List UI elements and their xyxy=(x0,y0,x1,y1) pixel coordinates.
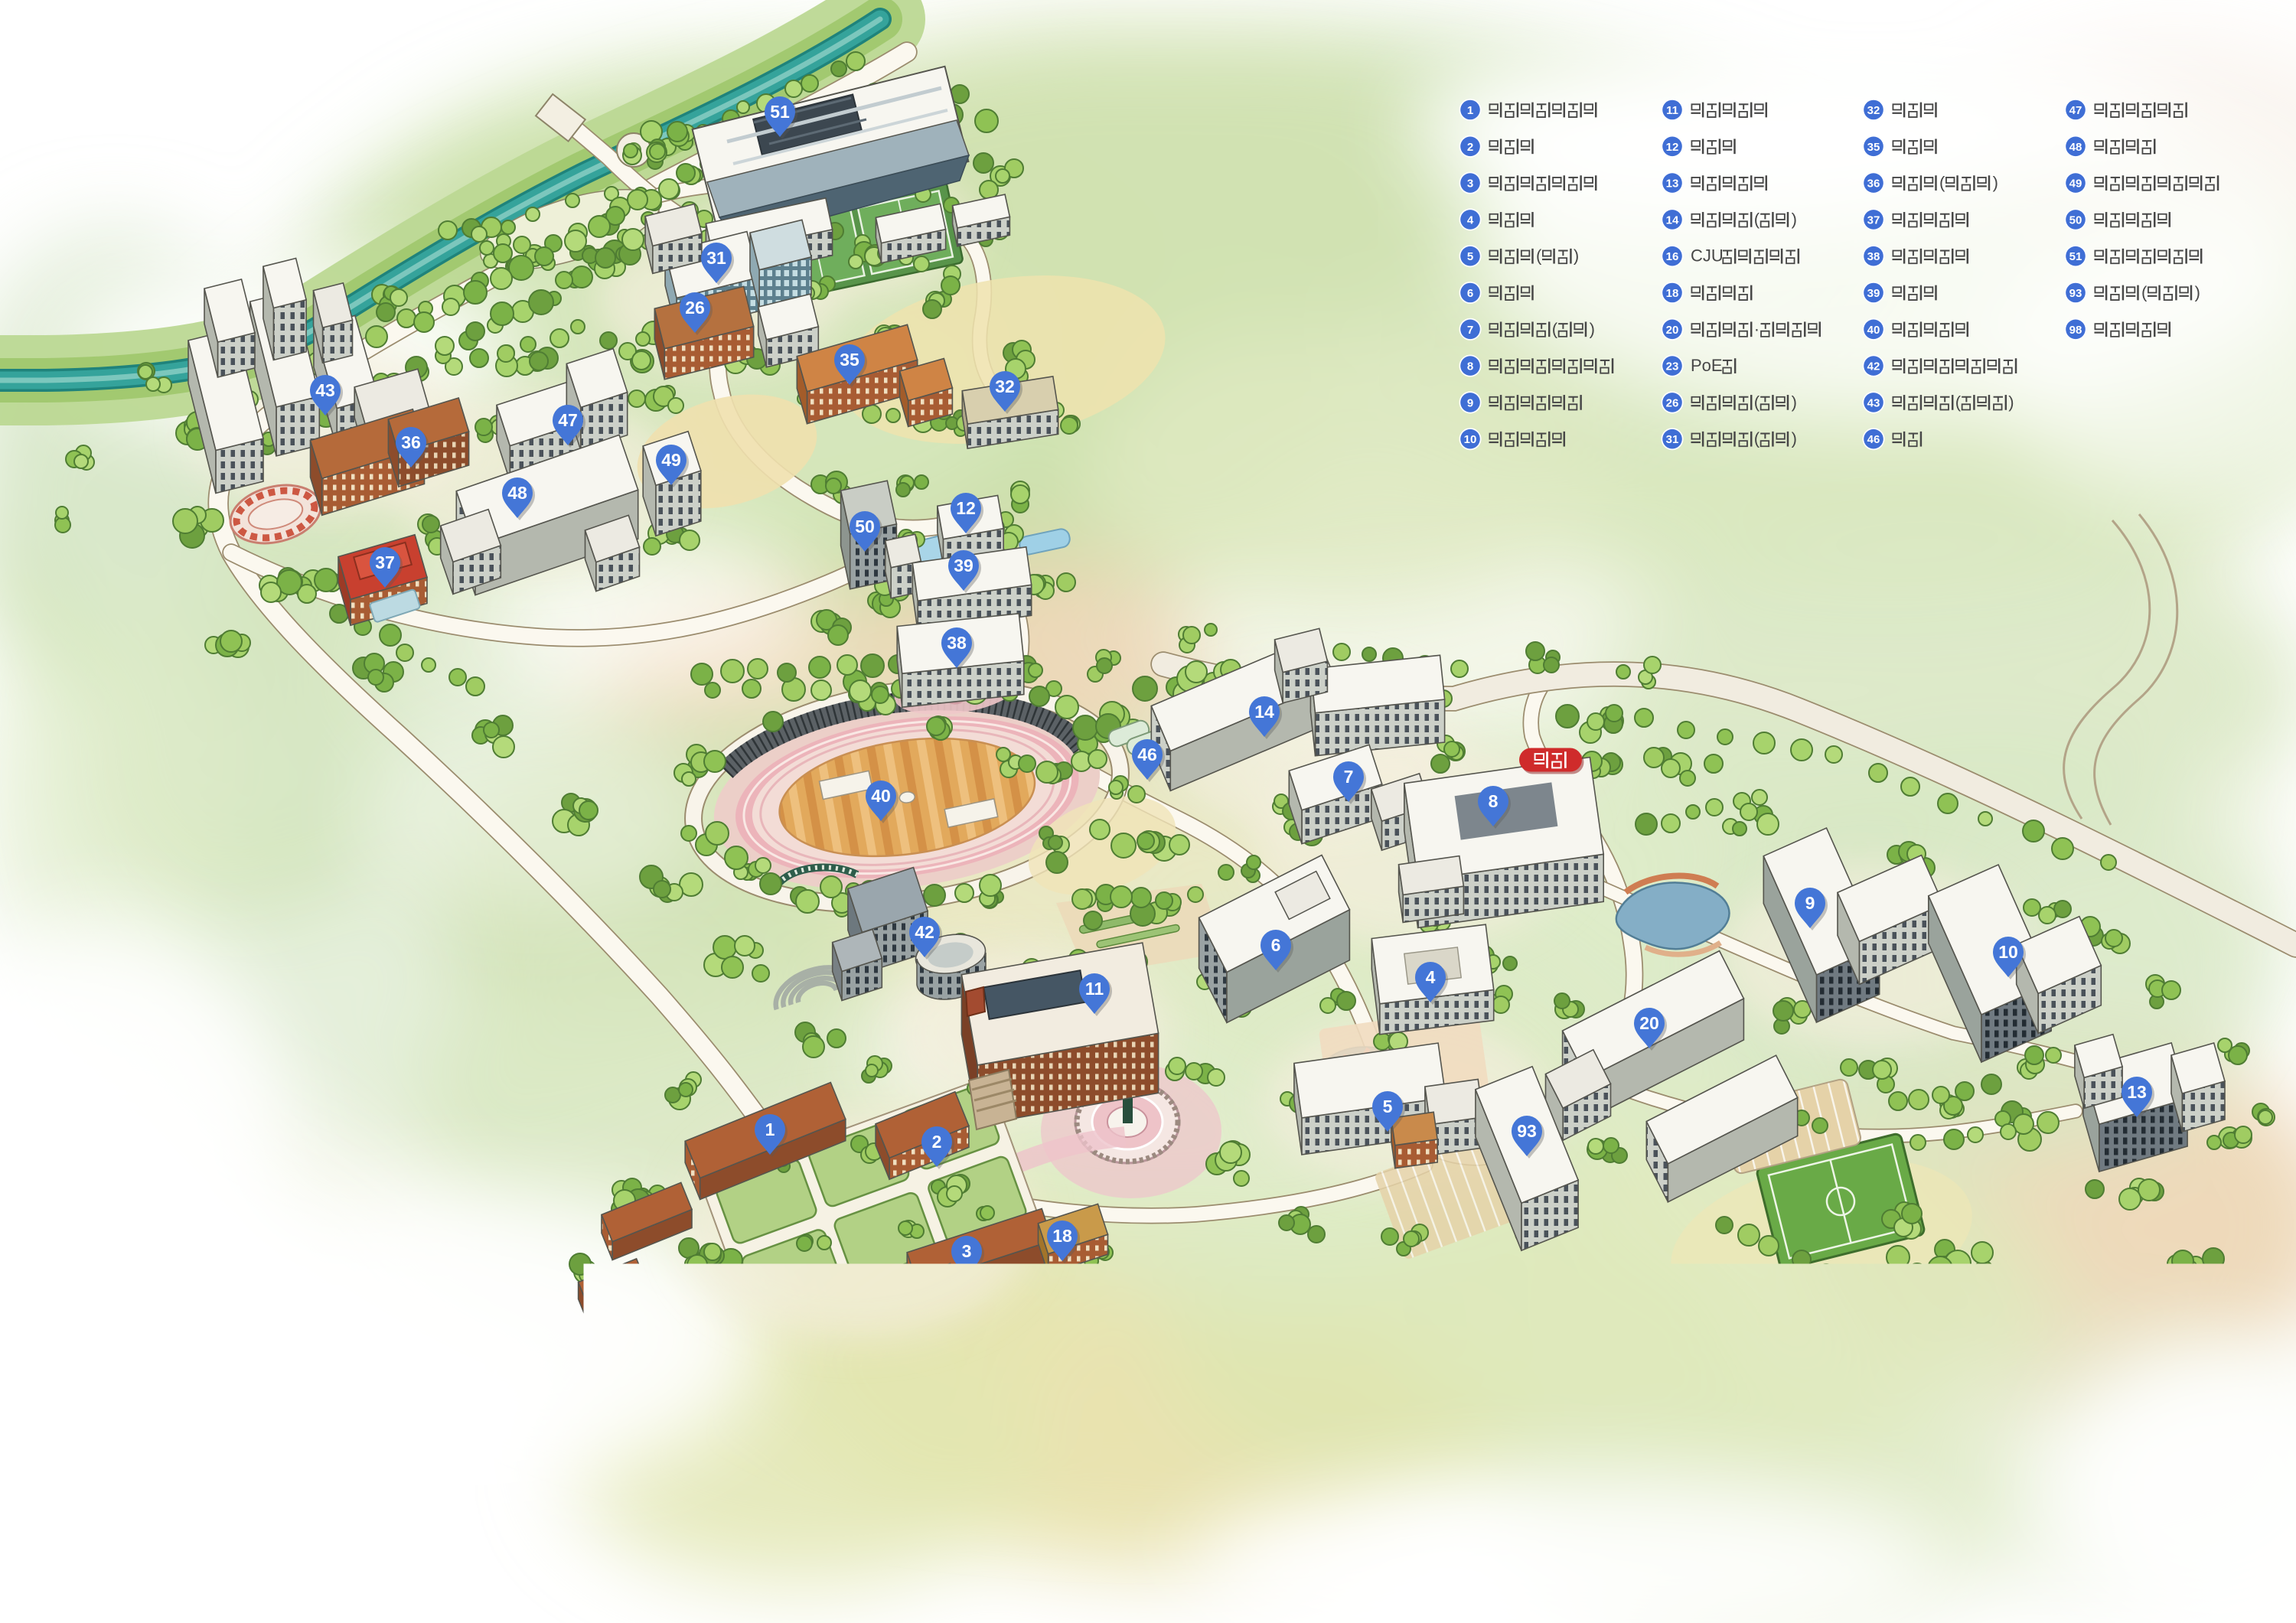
svg-text:42: 42 xyxy=(915,922,934,942)
svg-text:38: 38 xyxy=(947,633,967,653)
svg-text:7: 7 xyxy=(1344,767,1354,787)
svg-text:48: 48 xyxy=(2069,141,2082,154)
svg-text:47: 47 xyxy=(558,410,578,430)
svg-text:50: 50 xyxy=(855,517,875,536)
svg-text:2: 2 xyxy=(1467,141,1473,154)
svg-text:35: 35 xyxy=(840,350,859,370)
svg-text:18: 18 xyxy=(1666,287,1679,300)
svg-text:): ) xyxy=(1574,246,1579,266)
svg-text:12: 12 xyxy=(956,498,976,518)
svg-text:14: 14 xyxy=(1254,702,1274,722)
svg-text:1: 1 xyxy=(765,1119,775,1139)
svg-text:20: 20 xyxy=(1666,324,1679,337)
svg-text:6: 6 xyxy=(1467,287,1473,300)
svg-text:35: 35 xyxy=(1867,141,1880,154)
svg-text:9: 9 xyxy=(1467,396,1473,409)
svg-text:18: 18 xyxy=(1052,1226,1072,1246)
svg-text:(: ( xyxy=(1754,429,1760,448)
svg-text:38: 38 xyxy=(1867,250,1880,263)
svg-text:16: 16 xyxy=(852,1337,872,1357)
svg-text:(: ( xyxy=(1754,210,1760,229)
svg-text:98: 98 xyxy=(2069,324,2082,337)
svg-text:36: 36 xyxy=(1867,178,1880,191)
svg-text:36: 36 xyxy=(401,432,421,452)
svg-text:37: 37 xyxy=(375,552,395,572)
svg-text:5: 5 xyxy=(1383,1097,1393,1116)
svg-text:48: 48 xyxy=(507,483,527,503)
svg-text:(: ( xyxy=(1536,246,1542,266)
svg-text:39: 39 xyxy=(954,556,974,575)
svg-text:31: 31 xyxy=(706,248,726,268)
svg-text:2: 2 xyxy=(932,1132,942,1152)
svg-text:3: 3 xyxy=(1467,178,1473,191)
svg-text:): ) xyxy=(1792,210,1797,229)
svg-text:11: 11 xyxy=(1085,979,1104,999)
svg-text:(: ( xyxy=(1955,393,1962,412)
svg-text:23: 23 xyxy=(1666,360,1679,373)
svg-text:40: 40 xyxy=(1867,324,1880,337)
svg-text:(: ( xyxy=(2141,283,2148,302)
svg-text:8: 8 xyxy=(1489,791,1499,811)
svg-text:49: 49 xyxy=(661,450,681,470)
svg-text:4: 4 xyxy=(1467,213,1474,227)
svg-text:5: 5 xyxy=(1467,250,1473,263)
svg-text:46: 46 xyxy=(1137,745,1157,764)
svg-text:39: 39 xyxy=(1867,287,1880,300)
svg-text:10: 10 xyxy=(1998,942,2018,962)
svg-text:93: 93 xyxy=(2069,287,2082,300)
svg-text:1: 1 xyxy=(1467,104,1473,117)
svg-text:26: 26 xyxy=(685,298,705,318)
svg-text:(: ( xyxy=(1939,173,1945,192)
svg-text:): ) xyxy=(1792,429,1797,448)
svg-text:51: 51 xyxy=(2069,250,2082,263)
svg-text:32: 32 xyxy=(1867,104,1880,117)
svg-text:7: 7 xyxy=(1467,324,1473,337)
svg-text:CAMPUS MAP: CAMPUS MAP xyxy=(75,1498,405,1555)
svg-text:43: 43 xyxy=(1867,396,1880,409)
svg-text:6: 6 xyxy=(1271,935,1281,955)
svg-text:93: 93 xyxy=(1517,1121,1537,1141)
svg-text:16: 16 xyxy=(1666,250,1679,263)
svg-text:43: 43 xyxy=(315,380,335,400)
svg-text:): ) xyxy=(1590,319,1595,338)
svg-text:): ) xyxy=(1792,393,1797,412)
svg-text:): ) xyxy=(1993,173,1998,192)
svg-text:20: 20 xyxy=(1639,1013,1659,1033)
svg-text:40: 40 xyxy=(871,786,891,806)
svg-text:PoE: PoE xyxy=(1691,356,1723,375)
svg-text:13: 13 xyxy=(1666,178,1679,191)
svg-text:51: 51 xyxy=(770,102,790,122)
svg-text:12: 12 xyxy=(1666,141,1679,154)
svg-text:4: 4 xyxy=(1426,967,1436,987)
svg-text:(: ( xyxy=(1754,393,1760,412)
svg-text:9: 9 xyxy=(1805,893,1815,913)
svg-text:49: 49 xyxy=(2069,178,2082,191)
svg-text:(: ( xyxy=(1552,319,1558,338)
svg-text:): ) xyxy=(2195,283,2200,302)
svg-text:50: 50 xyxy=(2069,213,2082,227)
svg-text:13: 13 xyxy=(2127,1082,2147,1102)
svg-text:): ) xyxy=(2008,393,2014,412)
svg-text:46: 46 xyxy=(1867,433,1880,446)
svg-text:8: 8 xyxy=(1467,360,1473,373)
svg-text:14: 14 xyxy=(1666,213,1679,227)
svg-text:98: 98 xyxy=(762,1472,782,1492)
svg-text:·: · xyxy=(1754,319,1760,338)
svg-text:3: 3 xyxy=(962,1241,972,1261)
svg-text:CJU: CJU xyxy=(1691,246,1724,266)
svg-text:37: 37 xyxy=(1867,213,1880,227)
svg-text:42: 42 xyxy=(1867,360,1880,373)
svg-text:47: 47 xyxy=(2069,104,2082,117)
svg-text:11: 11 xyxy=(1666,104,1678,117)
svg-text:10: 10 xyxy=(1464,433,1477,446)
svg-text:32: 32 xyxy=(995,376,1015,396)
svg-text:31: 31 xyxy=(1666,433,1679,446)
svg-text:23: 23 xyxy=(892,1285,912,1305)
svg-text:26: 26 xyxy=(1666,396,1679,409)
